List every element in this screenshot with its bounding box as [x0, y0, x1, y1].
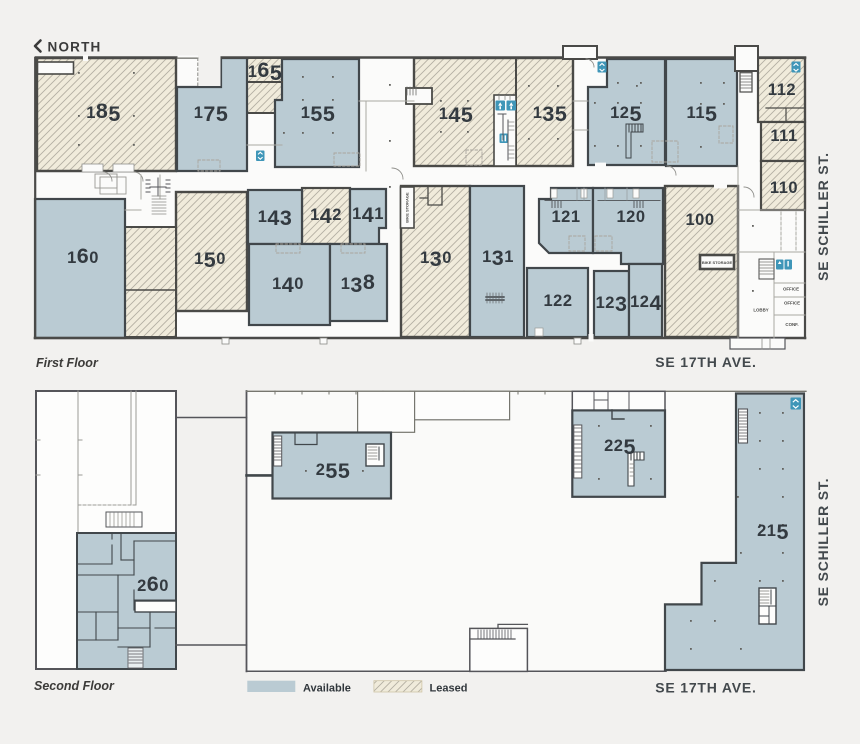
- svg-text:122: 122: [543, 292, 572, 310]
- svg-text:111: 111: [770, 127, 797, 145]
- svg-text:SE 17TH AVE.: SE 17TH AVE.: [655, 354, 756, 370]
- svg-text:Available: Available: [303, 683, 351, 695]
- svg-text:First Floor: First Floor: [36, 356, 99, 370]
- svg-text:Leased: Leased: [430, 683, 468, 695]
- svg-text:LOBBY: LOBBY: [753, 308, 768, 313]
- svg-text:121: 121: [551, 208, 580, 226]
- svg-text:BIKE STORAGE: BIKE STORAGE: [405, 192, 410, 223]
- svg-text:100: 100: [685, 211, 714, 229]
- svg-text:SE SCHILLER ST.: SE SCHILLER ST.: [815, 478, 831, 607]
- svg-text:110: 110: [770, 179, 798, 197]
- svg-text:Second Floor: Second Floor: [34, 679, 115, 693]
- svg-text:OFFICE: OFFICE: [783, 287, 799, 292]
- svg-text:BIKE STORAGE: BIKE STORAGE: [702, 260, 733, 265]
- svg-text:120: 120: [616, 208, 645, 226]
- svg-text:SE SCHILLER ST.: SE SCHILLER ST.: [815, 152, 831, 281]
- svg-text:CONF.: CONF.: [785, 322, 798, 327]
- svg-text:SE 17TH AVE.: SE 17TH AVE.: [655, 680, 756, 696]
- svg-text:112: 112: [768, 81, 796, 99]
- svg-text:OFFICE: OFFICE: [784, 301, 800, 306]
- svg-text:NORTH: NORTH: [48, 40, 102, 55]
